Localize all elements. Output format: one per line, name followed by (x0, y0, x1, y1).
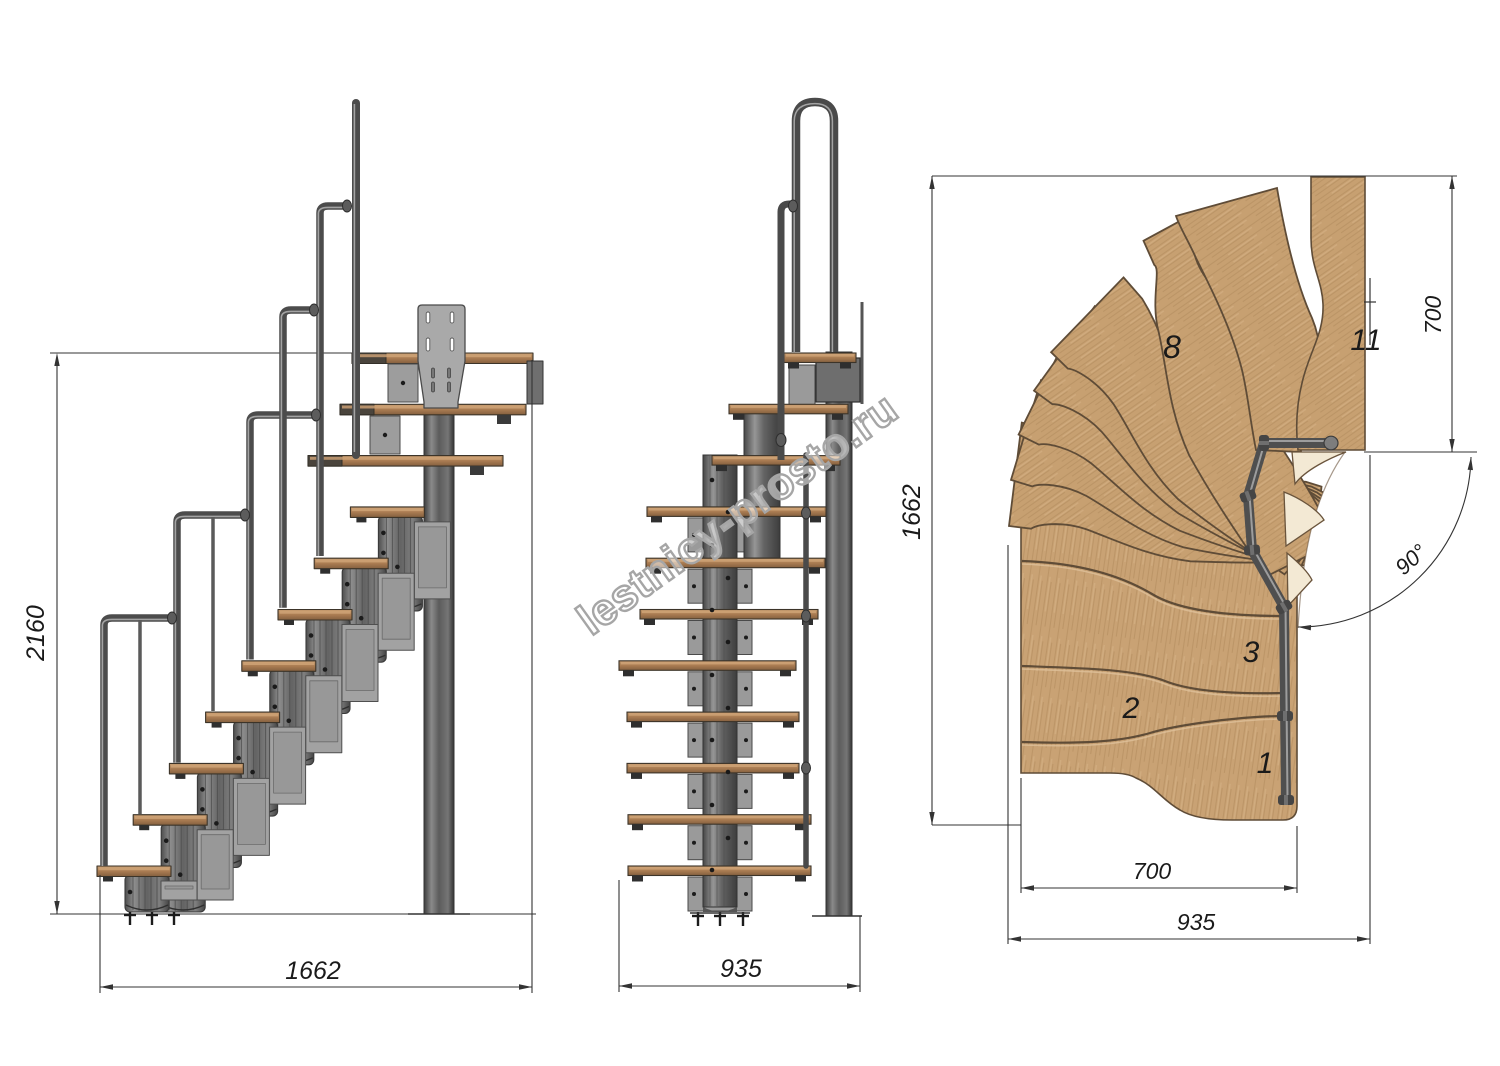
svg-text:700: 700 (1133, 858, 1172, 884)
svg-text:3: 3 (1243, 636, 1260, 669)
svg-text:935: 935 (720, 955, 762, 983)
svg-text:8: 8 (1163, 329, 1181, 365)
svg-text:935: 935 (1177, 909, 1216, 935)
svg-text:1662: 1662 (898, 484, 926, 540)
svg-text:2160: 2160 (22, 605, 50, 662)
svg-text:1662: 1662 (285, 957, 341, 985)
svg-text:11: 11 (1350, 324, 1381, 357)
svg-text:700: 700 (1420, 296, 1446, 335)
svg-text:1: 1 (1257, 747, 1274, 780)
svg-text:2: 2 (1122, 692, 1140, 725)
